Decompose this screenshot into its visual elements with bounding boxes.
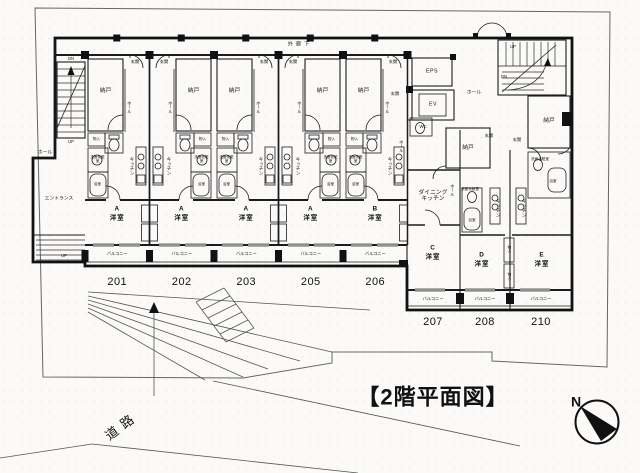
balcony-label-202: バルコニー xyxy=(171,252,192,256)
stairs-up-label: UP xyxy=(68,140,74,144)
nando-label-201: 納戸 xyxy=(100,88,112,94)
closet-label-de2: 物入 xyxy=(507,272,511,279)
kitchen-label-203: キッチン xyxy=(257,156,262,175)
entrance-up-label: UP xyxy=(61,254,67,258)
stairs-left xyxy=(57,62,85,138)
genkan-label-203: 玄関 xyxy=(260,60,268,64)
unit-number-206: 206 xyxy=(365,277,385,289)
balcony-label-201: バルコニー xyxy=(107,252,128,256)
bath-label-205: 浴室 xyxy=(327,183,334,187)
elevator-core xyxy=(406,54,456,120)
room-letter-201: A xyxy=(114,207,120,214)
building-outline xyxy=(33,38,572,310)
ev-label: EV xyxy=(429,102,437,107)
room-label-202: 洋室 xyxy=(174,216,189,223)
closet-label-202: 物入 xyxy=(199,138,206,142)
vanity-label-203: 洗面化粧室 xyxy=(219,156,234,164)
balcony-label-203: バルコニー xyxy=(236,252,257,256)
room-letter-203: A xyxy=(243,207,249,214)
nando-label-202: 納戸 xyxy=(188,88,200,94)
vanity-label-206: 洗面化粧室 xyxy=(348,156,363,164)
eps-label: EPS xyxy=(426,69,438,74)
nando-label-e: 納戸 xyxy=(543,118,555,124)
unit-number-210: 210 xyxy=(531,317,551,329)
entrance-steps xyxy=(33,38,85,260)
kitchen-label-d: キッチン xyxy=(494,198,499,217)
vanity-label-205: 洗面化粧室 xyxy=(323,156,338,164)
bath-label-e: 浴室 xyxy=(549,180,556,184)
floor-plan-page: 外廊下 道路 【2階平面図】 N DN UP ホール エントランス UP EPS… xyxy=(0,0,640,473)
balcony-label-207: バルコニー xyxy=(423,297,444,301)
nando-label-c: 納戸 xyxy=(462,145,474,151)
floorplan-canvas xyxy=(0,0,640,473)
open-corridor-label: 外廊下 xyxy=(288,42,313,47)
hall-label-201: ホール xyxy=(127,101,131,114)
unit-number-208: 208 xyxy=(475,317,495,329)
room-letter-208: D xyxy=(479,253,485,260)
closet-label-206: 物入 xyxy=(351,138,358,142)
genkan-label-202: 玄関 xyxy=(160,60,168,64)
room-label-205: 洋室 xyxy=(303,216,318,223)
nando-label-206: 納戸 xyxy=(358,88,370,94)
genkan-label-201: 玄関 xyxy=(131,60,139,64)
north-label: N xyxy=(571,395,581,410)
hall-label-c: ホール xyxy=(399,140,403,153)
balcony-label-205: バルコニー xyxy=(300,252,321,256)
entrance-label: エントランス xyxy=(45,196,74,201)
vanity-label-d: 洗面化粧室 xyxy=(461,188,479,192)
closet-label-205: 物入 xyxy=(328,138,335,142)
kitchen-label-201: キッチン xyxy=(128,156,133,175)
vanity-label-201: 洗面化粧室 xyxy=(90,156,105,164)
room-letter-207: C xyxy=(430,246,436,253)
unit-number-205: 205 xyxy=(301,277,321,289)
nando-label-203: 納戸 xyxy=(229,88,241,94)
balcony-label-210: バルコニー xyxy=(531,297,552,301)
genkan-label-206: 玄関 xyxy=(389,60,397,64)
room-label-207: 洋室 xyxy=(426,255,441,262)
kitchen-label-e: キッチン xyxy=(520,198,525,217)
genkan-label-c: 玄関 xyxy=(391,92,399,96)
bath-label-201: 浴室 xyxy=(94,183,101,187)
vanity-label-202: 洗面化粧室 xyxy=(194,156,209,164)
stairs-dn-label: DN xyxy=(68,57,74,61)
stairs-tr-up-label: UP xyxy=(510,45,516,49)
hall-label-left: ホール xyxy=(38,150,52,155)
room-letter-205: A xyxy=(308,207,314,214)
room-label-203: 洋室 xyxy=(239,216,254,223)
room-label-206: 洋室 xyxy=(368,216,383,223)
room-letter-202: A xyxy=(179,207,185,214)
closet-label-201: 物入 xyxy=(93,138,100,142)
unit-number-207: 207 xyxy=(423,317,443,329)
unit-number-203: 203 xyxy=(236,277,256,289)
genkan-label-e: 玄関 xyxy=(513,138,521,142)
hall-label-203: ホール xyxy=(256,101,260,114)
page-title: 【2階平面図】 xyxy=(357,385,508,408)
hall-label-206: ホール xyxy=(385,101,389,114)
hall-label-core: ホール xyxy=(467,90,481,95)
balcony-label-206: バルコニー xyxy=(365,252,386,256)
room-label-201: 洋室 xyxy=(110,216,125,223)
unit-number-202: 202 xyxy=(172,277,192,289)
closet-label-de1: 物入 xyxy=(507,245,511,252)
hall-label-205: ホール xyxy=(297,101,301,114)
stairs-top-right xyxy=(498,40,566,95)
dining-kitchen-label: ダイニング キッチン xyxy=(415,190,451,202)
genkan-label-205: 玄関 xyxy=(289,60,297,64)
balcony-label-208: バルコニー xyxy=(475,297,496,301)
room-letter-206: B xyxy=(372,207,378,214)
hall-label-202: ホール xyxy=(168,101,172,114)
room-label-210: 洋室 xyxy=(535,262,550,269)
kitchen-label-205: キッチン xyxy=(294,156,299,175)
kitchen-label-202: キッチン xyxy=(165,156,170,175)
room-label-208: 洋室 xyxy=(475,262,490,269)
kitchen-label-206: キッチン xyxy=(386,156,391,175)
bath-label-203: 浴室 xyxy=(223,183,230,187)
room-letter-210: E xyxy=(539,253,544,260)
bath-label-d: 浴室 xyxy=(468,219,475,223)
unit-number-201: 201 xyxy=(107,277,127,289)
closet-label-203: 物入 xyxy=(222,138,229,142)
genkan-label-d: 玄関 xyxy=(485,134,493,138)
bath-label-202: 浴室 xyxy=(198,183,205,187)
wc-label-core: WC xyxy=(420,125,427,129)
stairs-tr-dn-label: DN xyxy=(501,75,507,79)
bath-label-206: 浴室 xyxy=(352,183,359,187)
nando-label-205: 納戸 xyxy=(317,88,329,94)
vanity-label-e: 洗面化粧室 xyxy=(531,158,549,162)
north-compass xyxy=(576,401,619,444)
